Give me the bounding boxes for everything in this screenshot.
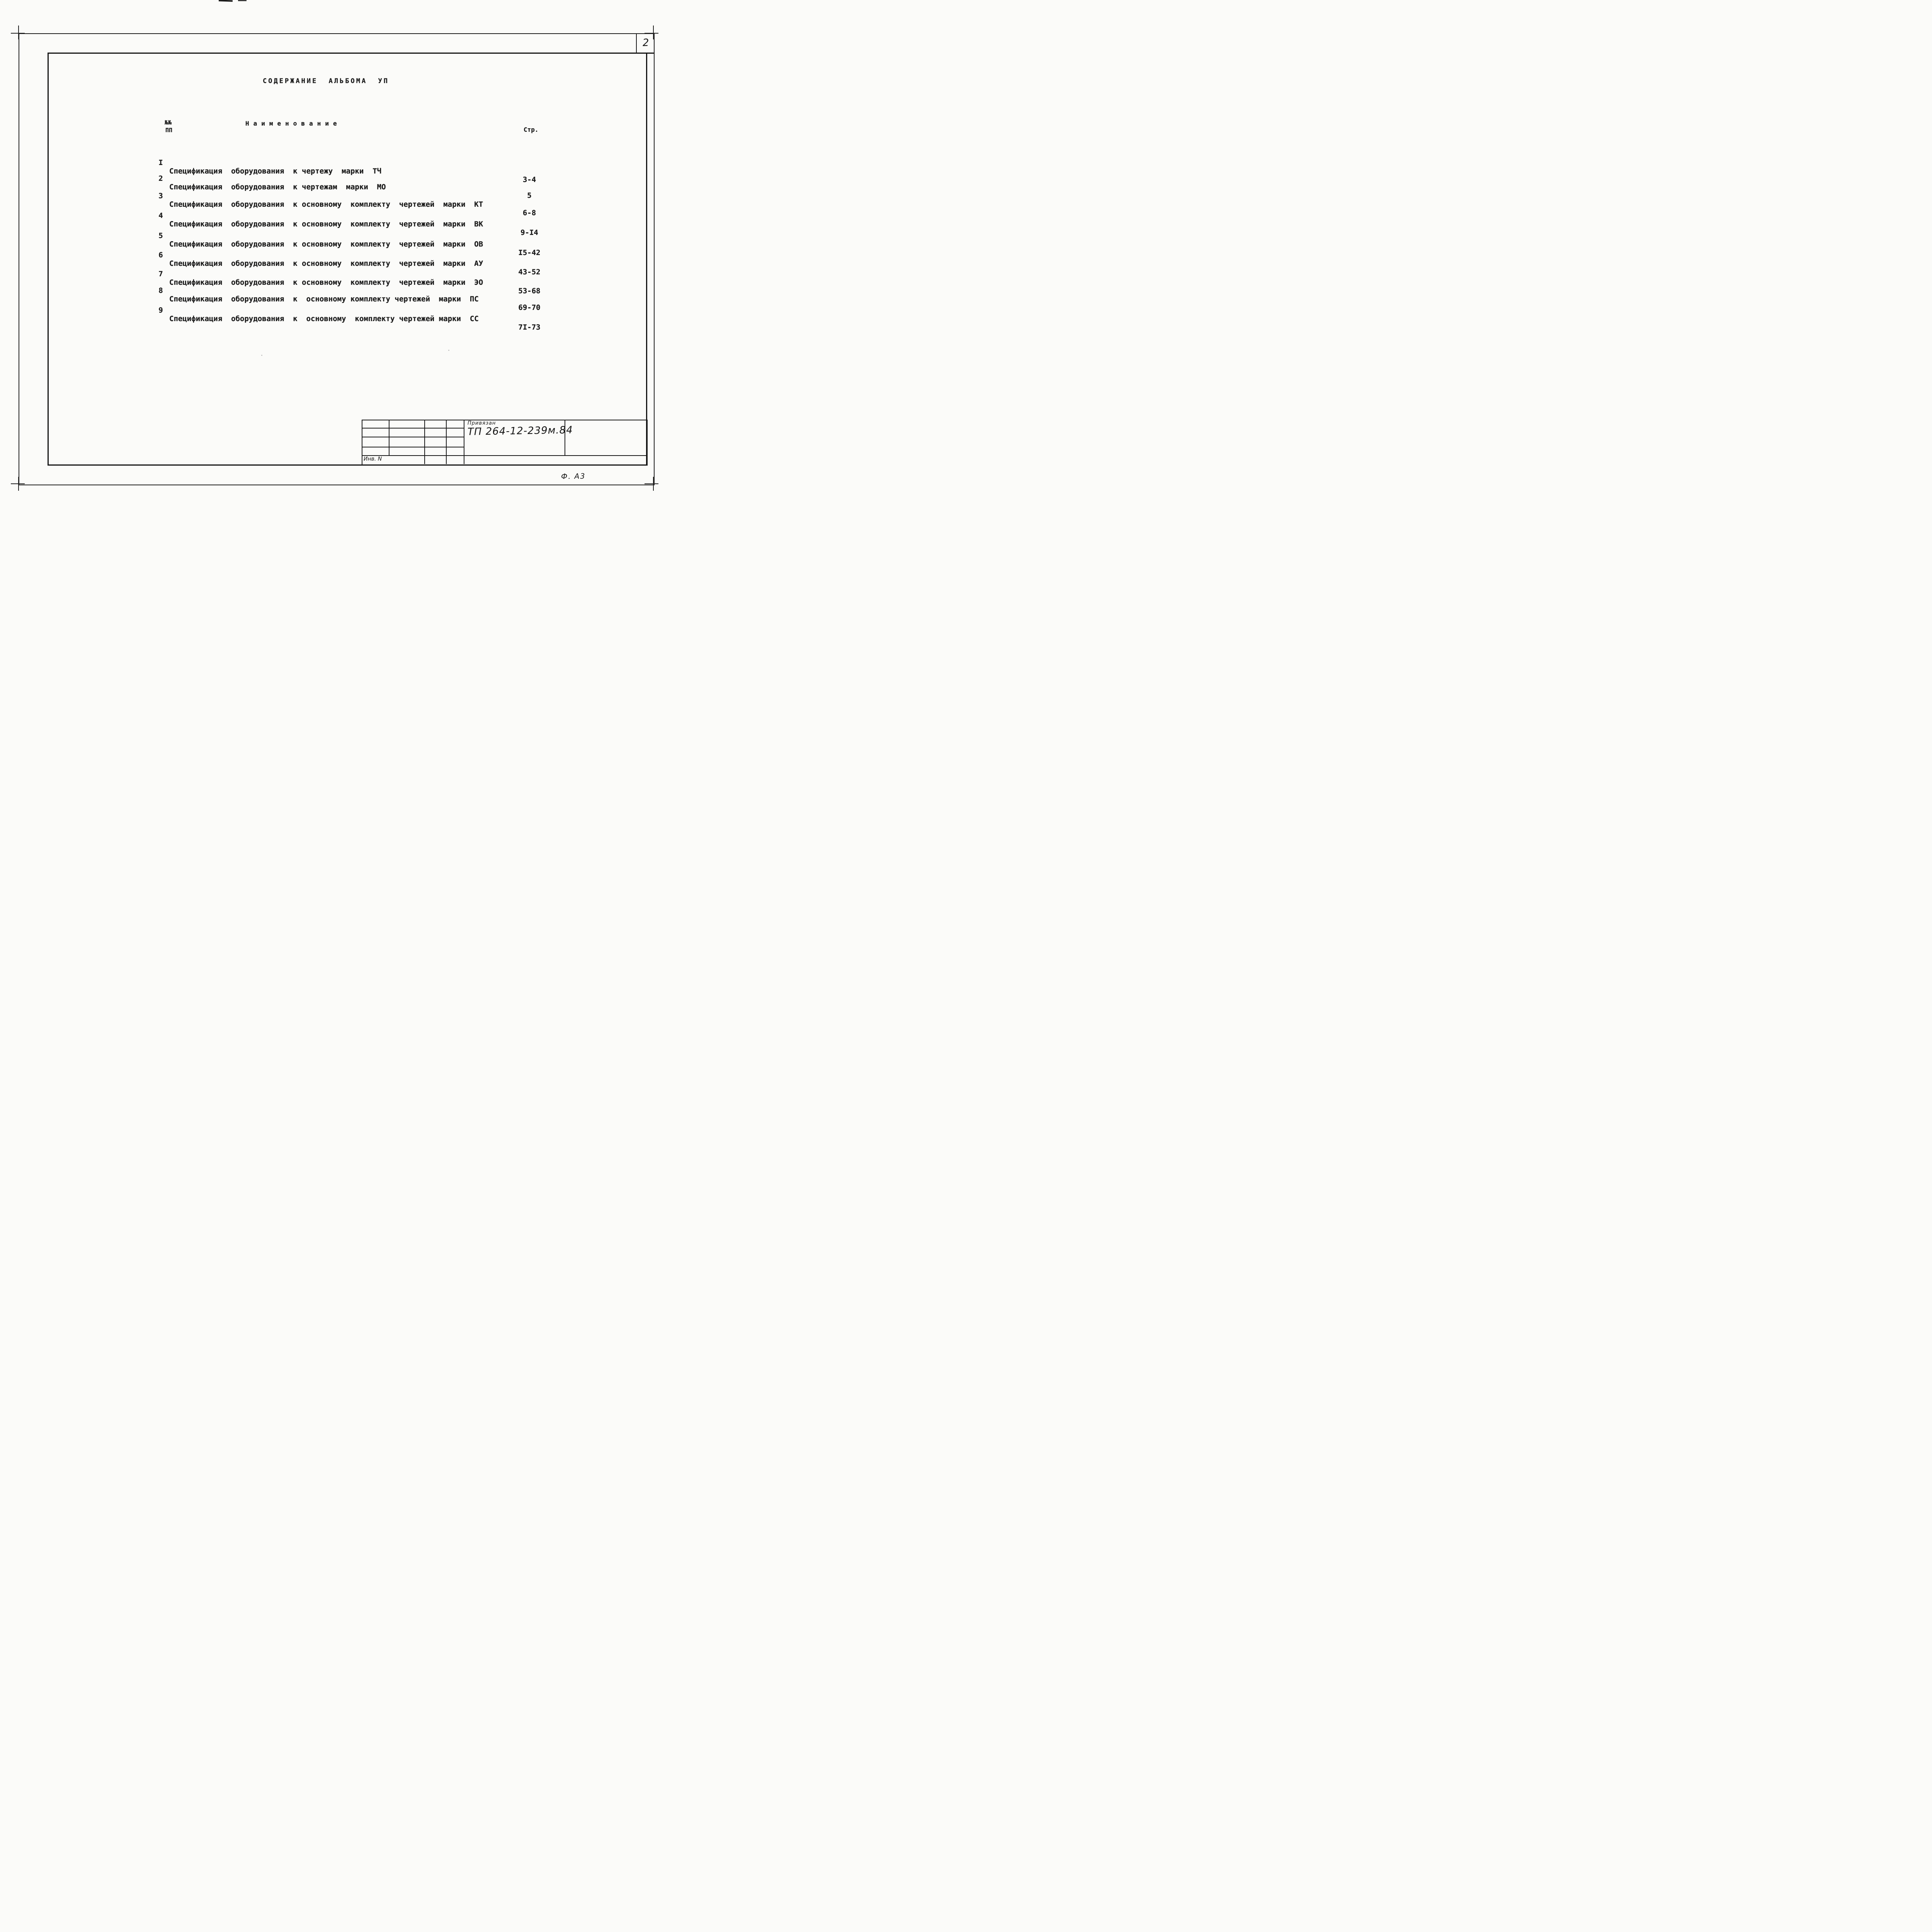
scan-speck	[417, 247, 418, 248]
scanned-drawing-sheet: 2 СОДЕРЖАНИЕ АЛЬБОМА УП №№ ПП Наименован…	[0, 0, 669, 495]
table-row: 8 Спецификация оборудования к основному …	[0, 278, 669, 287]
title-block-line	[362, 437, 464, 437]
title-block-inventory-label: Инв. N	[364, 456, 382, 462]
title-block-line	[424, 420, 425, 464]
table-row: 3 Спецификация оборудования к основному …	[0, 183, 669, 192]
row-number: 7	[156, 270, 166, 278]
trim-tick	[18, 477, 19, 491]
title-block-line	[464, 420, 464, 464]
trim-tick	[18, 26, 19, 39]
page-title: СОДЕРЖАНИЕ АЛЬБОМА УП	[263, 77, 389, 85]
trim-tick	[11, 33, 25, 34]
table-row: 7 Спецификация оборудования к основному …	[0, 261, 669, 270]
row-pages: 53-68	[515, 287, 544, 295]
row-pages: 5	[515, 191, 544, 200]
table-row: 9 Спецификация оборудования к основному …	[0, 298, 669, 307]
title-block-line	[362, 428, 464, 429]
table-row: 6 Спецификация оборудования к основному …	[0, 242, 669, 252]
column-header-name: Наименование	[245, 120, 341, 127]
scan-speck	[261, 355, 262, 356]
trim-tick	[11, 483, 25, 484]
format-label: Ф. А3	[561, 472, 586, 481]
title-block-line	[389, 420, 389, 455]
scan-edge-mark	[219, 0, 233, 2]
scan-edge-mark	[238, 0, 247, 1]
row-number: 9	[156, 306, 166, 315]
column-header-pages: Стр.	[524, 126, 539, 133]
table-row: 2 Спецификация оборудования к чертежам м…	[0, 166, 669, 175]
row-number: 3	[156, 192, 166, 200]
title-block-bound-label: Привязан	[468, 420, 496, 426]
title-block-line	[362, 447, 464, 447]
title-block-document-number: ТП 264-12-239м.84	[468, 424, 573, 438]
row-pages: 7I-73	[515, 323, 544, 332]
column-header-number-line1: №№	[165, 119, 172, 126]
scan-speck	[448, 350, 449, 351]
trim-tick	[653, 477, 654, 491]
title-block-line	[446, 420, 447, 464]
row-number: 2	[156, 174, 166, 183]
title-block-line	[362, 455, 646, 456]
row-number: 4	[156, 211, 166, 220]
row-number: 5	[156, 231, 166, 240]
table-row: I Спецификация оборудования к чертежу ма…	[0, 150, 669, 159]
row-number: 8	[156, 286, 166, 295]
page-number-box: 2	[636, 33, 655, 54]
trim-tick	[645, 483, 658, 484]
table-row: 4 Спецификация оборудования к основному …	[0, 203, 669, 212]
page-number: 2	[642, 37, 649, 49]
column-header-number-line2: ПП	[165, 127, 172, 134]
row-pages: 3-4	[515, 175, 544, 184]
row-name: Спецификация оборудования к основному ко…	[169, 315, 479, 323]
table-row: 5 Спецификация оборудования к основному …	[0, 223, 669, 232]
row-number: 6	[156, 251, 166, 259]
